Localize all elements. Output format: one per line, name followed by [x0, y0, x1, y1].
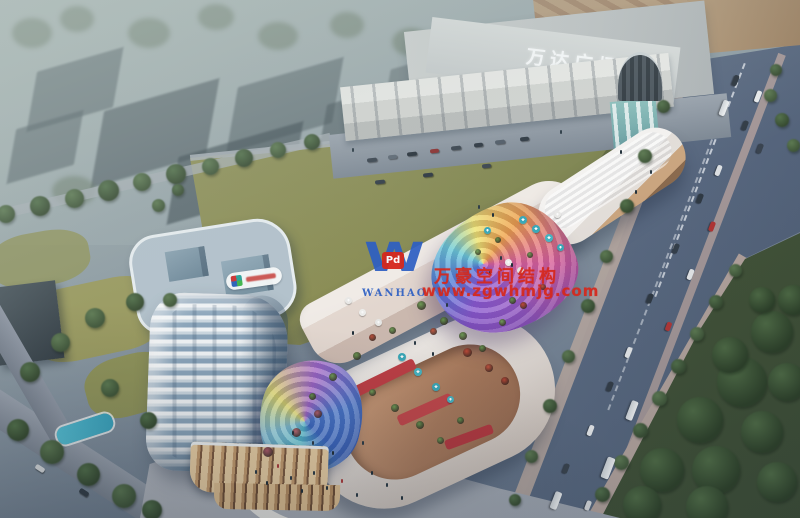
hazy-tree	[60, 6, 94, 32]
tree	[163, 293, 177, 307]
shrub	[495, 237, 501, 243]
umbrella	[345, 297, 352, 304]
tree	[768, 363, 800, 401]
tree	[709, 295, 723, 309]
shrub	[463, 348, 472, 357]
umbrella	[554, 211, 561, 218]
tree	[543, 399, 557, 413]
person	[255, 470, 257, 474]
tree	[509, 494, 521, 506]
tree	[712, 337, 748, 373]
person	[313, 471, 315, 475]
umbrella	[519, 216, 527, 224]
person	[326, 486, 328, 490]
car	[387, 155, 396, 160]
hazy-tree	[330, 12, 364, 38]
person	[352, 331, 354, 335]
tree	[30, 196, 50, 216]
person	[352, 148, 354, 152]
shrub	[369, 389, 376, 396]
person	[362, 441, 364, 445]
tree	[112, 484, 136, 508]
person	[650, 170, 652, 174]
tree	[633, 423, 648, 438]
shrub	[391, 404, 399, 412]
person	[371, 471, 373, 475]
shrub	[501, 377, 509, 385]
umbrella	[484, 227, 491, 234]
person	[432, 352, 434, 356]
car	[78, 487, 89, 497]
tree	[729, 264, 742, 277]
shrub	[389, 327, 396, 334]
person	[312, 441, 314, 445]
shrub	[499, 319, 506, 326]
tree	[638, 149, 652, 163]
person	[401, 496, 403, 500]
tower-base-storefronts	[214, 483, 340, 511]
tower-logo-text-blur	[246, 273, 276, 282]
person	[492, 213, 494, 217]
umbrella	[447, 396, 454, 403]
shrub	[369, 334, 376, 341]
tree	[595, 487, 610, 502]
tree	[640, 448, 684, 492]
tree	[40, 440, 64, 464]
tree	[85, 308, 105, 328]
watermark-website: www.zgwhmjg.com	[422, 282, 599, 300]
shrub	[479, 345, 486, 352]
umbrella	[375, 319, 382, 326]
tree	[770, 64, 782, 76]
wanhao-logo: W Pd WANHAO	[362, 244, 426, 304]
person	[414, 341, 416, 345]
person	[341, 479, 343, 483]
watermark: W Pd WANHAO 万豪空间结构 www.zgwhmjg.com	[362, 244, 602, 310]
tree	[101, 379, 119, 397]
car	[429, 149, 438, 154]
hazy-tree	[128, 18, 170, 48]
tree	[525, 450, 538, 463]
tree	[270, 142, 286, 158]
person	[301, 489, 303, 493]
person	[277, 464, 279, 468]
tree	[764, 89, 777, 102]
umbrella	[545, 234, 553, 242]
person	[620, 150, 622, 154]
person	[386, 483, 388, 487]
shrub	[416, 421, 424, 429]
tree	[749, 287, 775, 313]
umbrella	[532, 225, 540, 233]
shrub	[329, 373, 337, 381]
scene: 万达广场 W Pd WANHAO 万豪空间结构 www.zgwhmjg.com	[0, 0, 800, 518]
tree	[51, 333, 70, 352]
shrub	[457, 417, 464, 424]
tree	[690, 327, 704, 341]
person	[356, 493, 358, 497]
person	[635, 190, 637, 194]
warehouse-block	[7, 110, 84, 184]
tree	[778, 285, 800, 315]
tree	[142, 500, 162, 518]
tower-logo-icon	[230, 275, 242, 287]
shrub	[485, 364, 493, 372]
car	[34, 463, 45, 473]
tree	[751, 311, 793, 353]
tree	[677, 397, 723, 443]
tree	[741, 411, 783, 453]
tree	[620, 199, 634, 213]
tree	[757, 462, 797, 502]
tree	[133, 173, 151, 191]
hazy-tree	[198, 4, 234, 30]
person	[478, 205, 480, 209]
shrub	[430, 328, 437, 335]
tree	[65, 189, 84, 208]
tree	[166, 164, 186, 184]
car	[481, 164, 490, 169]
tree	[652, 391, 667, 406]
wanhao-brand-name: WANHAO	[362, 288, 427, 299]
shrub	[437, 437, 444, 444]
car	[473, 143, 482, 148]
tree	[657, 100, 670, 113]
tree	[614, 455, 629, 470]
shrub	[314, 410, 322, 418]
tree	[623, 486, 661, 518]
tree	[98, 180, 119, 201]
hazy-tree	[258, 22, 298, 50]
tree	[7, 419, 29, 441]
tree	[152, 199, 165, 212]
tree	[20, 362, 40, 382]
person	[290, 476, 292, 480]
rooftop-unit	[165, 246, 209, 282]
tree	[671, 359, 686, 374]
tree	[787, 139, 800, 152]
tree	[304, 134, 320, 150]
tree	[77, 463, 100, 486]
shrub	[353, 352, 361, 360]
umbrella	[398, 353, 406, 361]
person	[292, 431, 294, 435]
tree	[775, 113, 789, 127]
hazy-tree	[12, 18, 52, 48]
tree	[140, 412, 157, 429]
umbrella	[414, 368, 422, 376]
shrub	[309, 393, 316, 400]
tree	[202, 158, 219, 175]
tree	[126, 293, 144, 311]
person	[560, 130, 562, 134]
umbrella	[432, 383, 440, 391]
tree	[235, 149, 253, 167]
person	[332, 451, 334, 455]
shrub	[459, 332, 467, 340]
tree	[562, 350, 575, 363]
tree	[172, 184, 184, 196]
car	[519, 137, 528, 142]
wanhao-badge: Pd	[382, 252, 404, 269]
person	[266, 481, 268, 485]
shrub	[263, 447, 273, 457]
shrub	[440, 317, 448, 325]
